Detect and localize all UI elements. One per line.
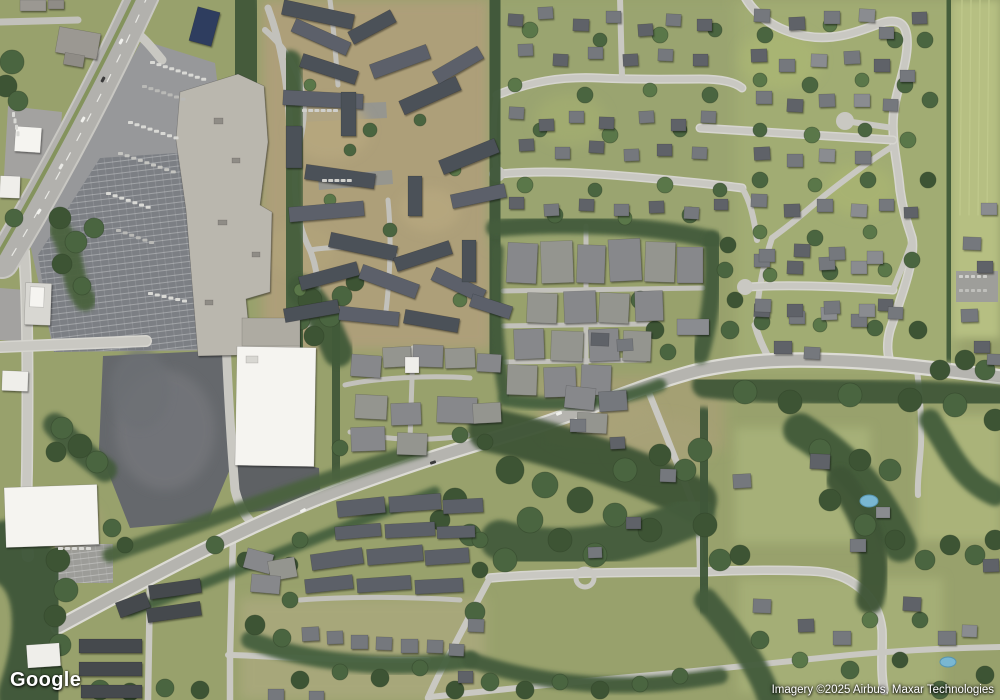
map-viewport[interactable]: Google Imagery ©2025 Airbus, Maxar Techn… xyxy=(0,0,1000,700)
satellite-imagery[interactable] xyxy=(0,0,1000,700)
google-logo[interactable]: Google xyxy=(10,669,81,692)
imagery-attribution: Imagery ©2025 Airbus, Maxar Technologies xyxy=(772,684,994,696)
